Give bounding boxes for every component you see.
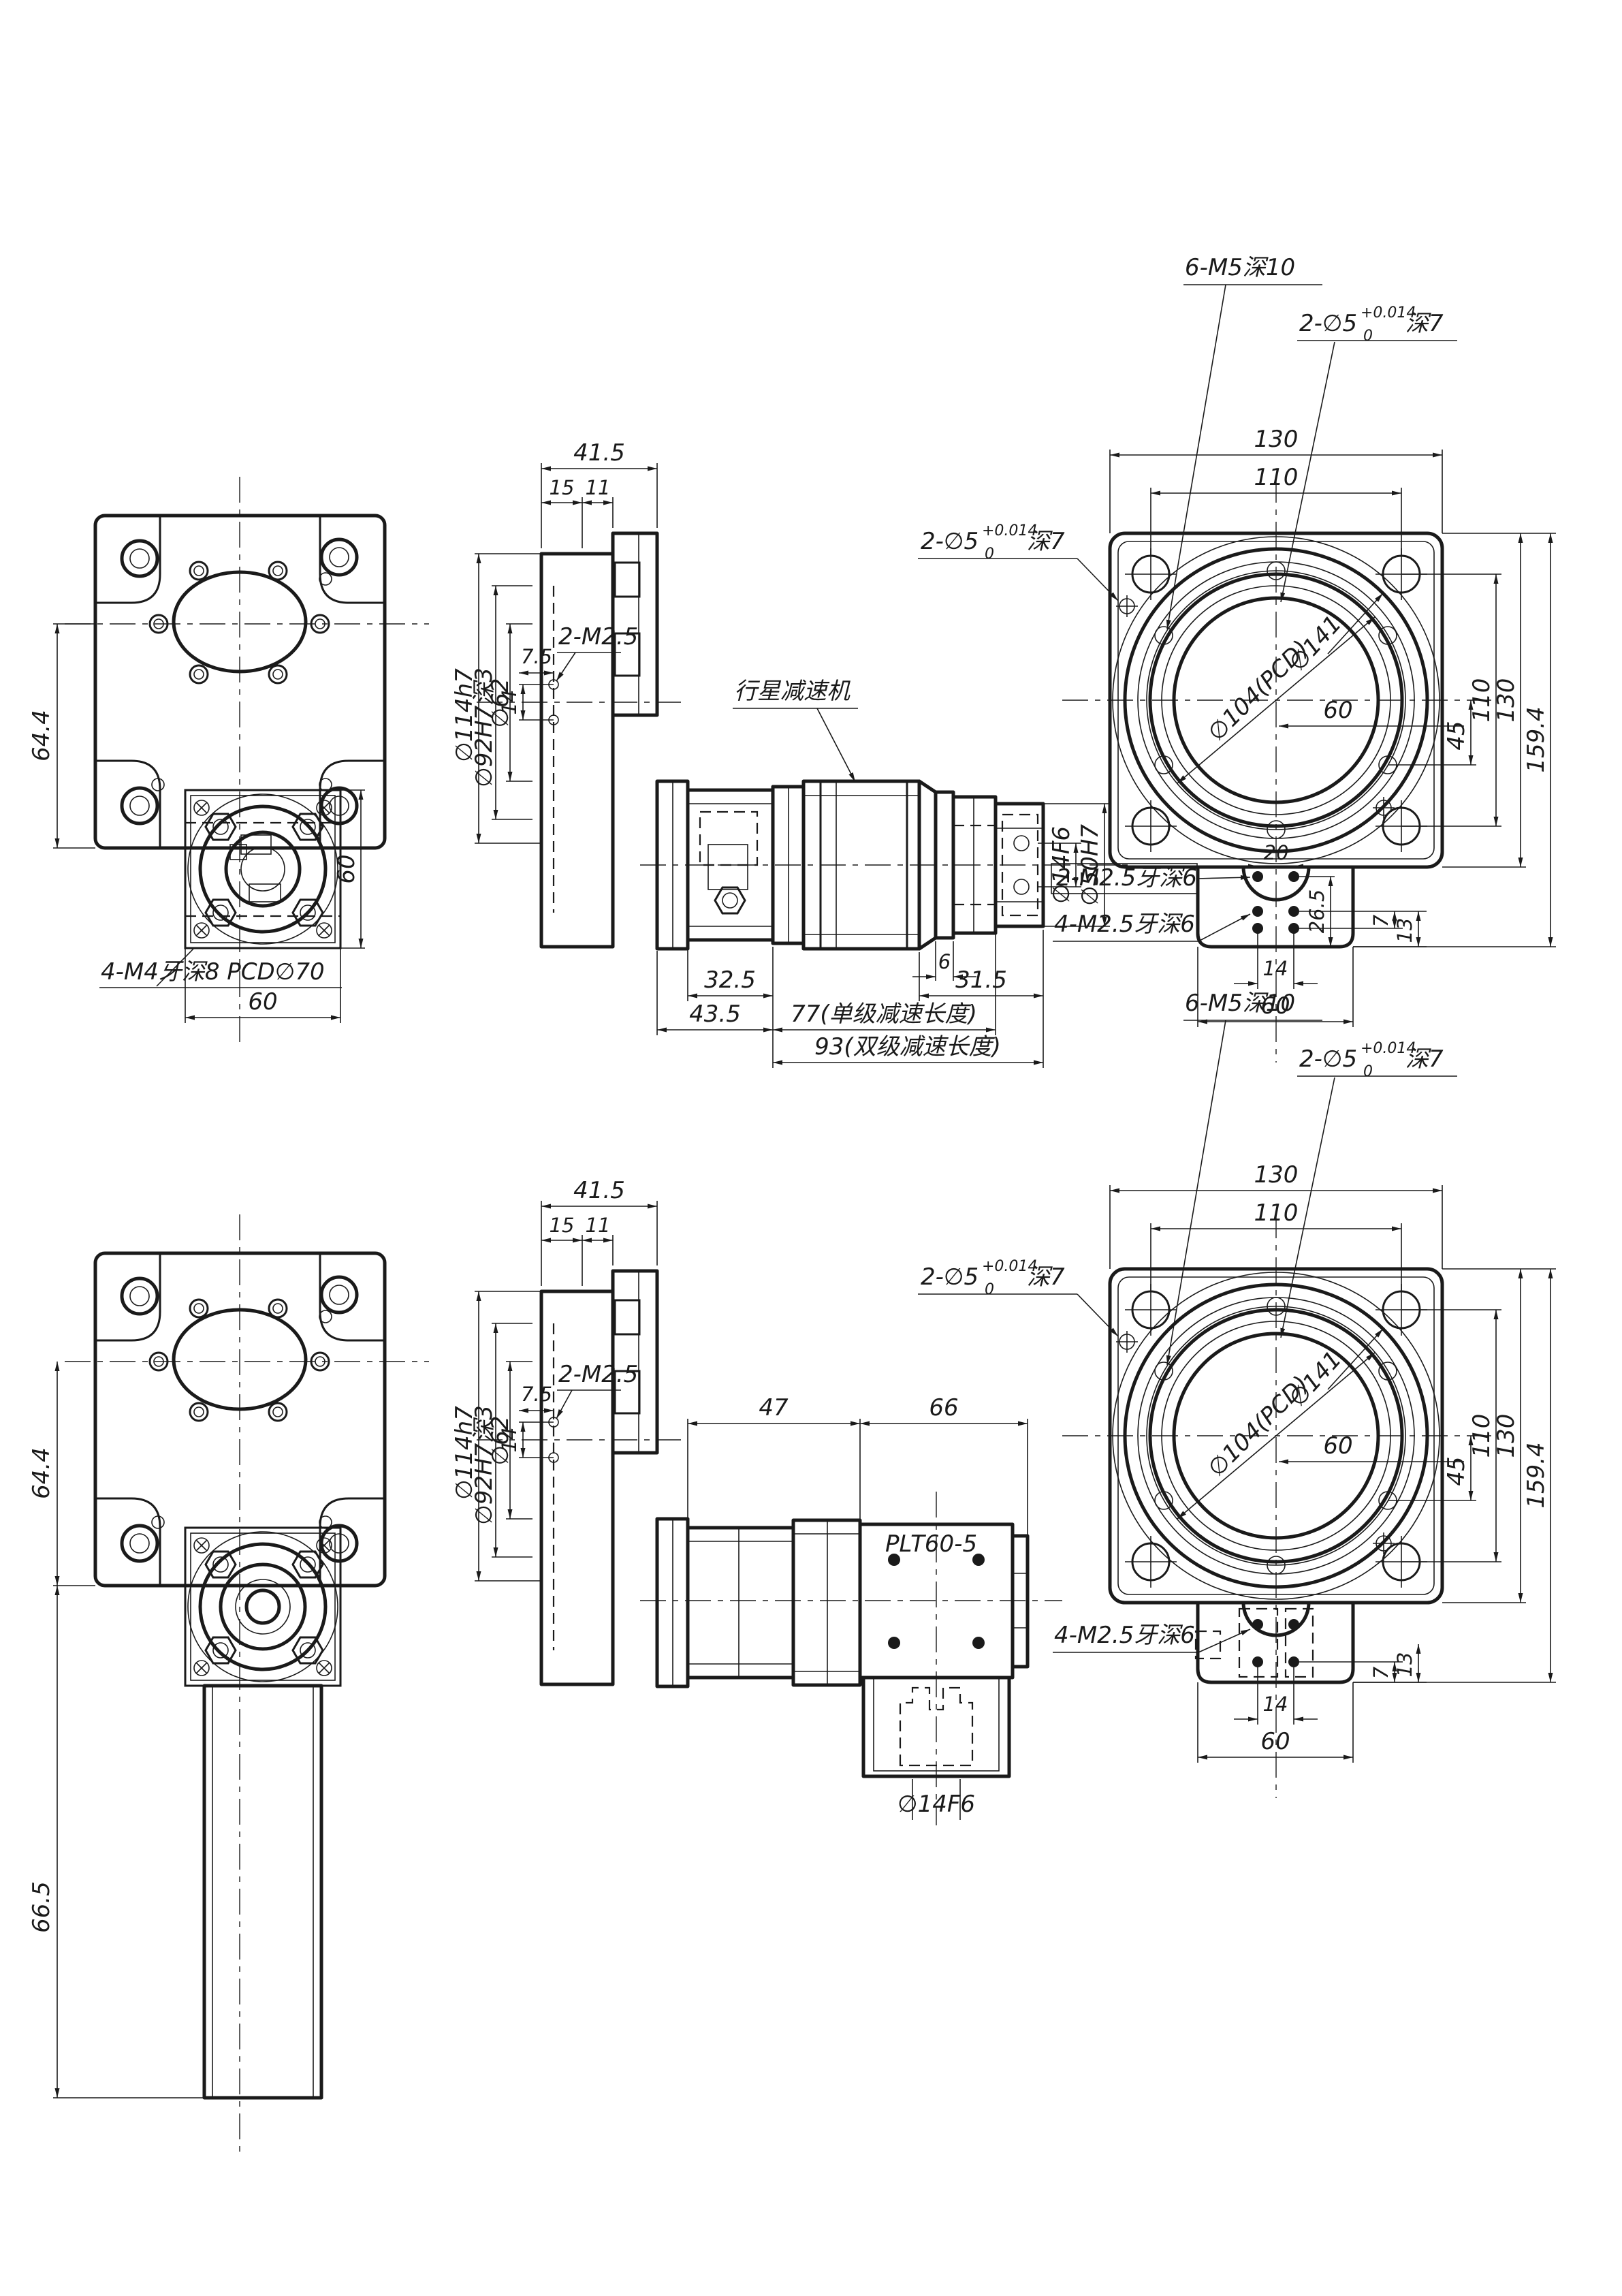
dim-130rb: 130 bbox=[1493, 1414, 1520, 1458]
dim-14bb: 14 bbox=[1263, 1693, 1288, 1716]
dim-dia104: ∅104(PCD) bbox=[1203, 635, 1314, 746]
dim-hole-offset: 7.5 bbox=[521, 645, 552, 668]
note-m4-thread: 4-M4牙深8 PCD∅70 bbox=[101, 958, 325, 986]
pin-prefix: 2-∅5 bbox=[921, 528, 979, 555]
dim-13: 13 bbox=[1393, 918, 1416, 943]
note-pin-left: 2-∅5 +0.014 0 深7 bbox=[918, 522, 1118, 601]
dim-dia62: ∅62 bbox=[487, 678, 514, 728]
dim-110rb: 110 bbox=[1468, 1414, 1495, 1458]
dim-45b: 45 bbox=[1443, 1456, 1470, 1485]
note-m25x4b: 4-M2.5牙深6 bbox=[1054, 1622, 1195, 1649]
dim-out-len: 31.5 bbox=[955, 966, 1007, 994]
dim-flange-height: 60 bbox=[333, 854, 360, 883]
pin-sub: 0 bbox=[985, 1281, 994, 1298]
dim-hole-pitch110b: 110 bbox=[1254, 1199, 1299, 1227]
pin-suffix: 深7 bbox=[1405, 1045, 1444, 1073]
dim-hole-offset2: 7.5 bbox=[521, 1383, 552, 1406]
pin-sub: 0 bbox=[1363, 328, 1373, 345]
note-m5: 6-M5深10 bbox=[1185, 254, 1295, 281]
dim-half60b: 60 bbox=[1323, 1432, 1352, 1460]
drawing-sheet: 4-M4牙深8 PCD∅70 60 60 64.4 2-M2.5 7.5 14 … bbox=[0, 0, 1622, 2296]
dim-7: 7 bbox=[1369, 914, 1393, 927]
dim-double-stage: 93(双级减速长度) bbox=[814, 1033, 1001, 1060]
dim-total-height: 159.4 bbox=[1523, 706, 1550, 772]
dim-60bb: 60 bbox=[1260, 1728, 1290, 1755]
dim-total-height-b: 159.4 bbox=[1523, 1442, 1550, 1508]
dim-45: 45 bbox=[1443, 721, 1470, 750]
pin-prefix: 2-∅5 bbox=[921, 1263, 979, 1291]
dim-single-stage: 77(单级减速长度) bbox=[791, 1001, 977, 1028]
note-m25x2: 2-M2.5牙深6 bbox=[1056, 864, 1197, 892]
dim-center-offset: 64.4 bbox=[28, 710, 55, 761]
note-model: PLT60-5 bbox=[885, 1530, 977, 1558]
note-m5b: 6-M5深10 bbox=[1185, 990, 1295, 1017]
pin-suffix: 深7 bbox=[1027, 528, 1065, 555]
note-pin-left-b: 2-∅5 +0.014 0 深7 bbox=[918, 1258, 1118, 1336]
dim-center-offset2: 64.4 bbox=[28, 1447, 55, 1499]
dim-step11b: 11 bbox=[586, 1214, 611, 1237]
note-m25-top: 2-M2.5 bbox=[558, 623, 638, 650]
dim-13b: 13 bbox=[1393, 1652, 1416, 1678]
pin-suffix: 深7 bbox=[1405, 310, 1444, 337]
dim-flange-width: 60 bbox=[248, 988, 277, 1016]
pin-prefix: 2-∅5 bbox=[1299, 310, 1357, 337]
dim-step15b: 15 bbox=[550, 1214, 575, 1237]
cad-canvas: 4-M4牙深8 PCD∅70 60 60 64.4 2-M2.5 7.5 14 … bbox=[0, 0, 1622, 2296]
note-planetary-reducer: 行星减速机 bbox=[734, 678, 850, 705]
note-m25x4: 4-M2.5牙深6 bbox=[1054, 911, 1195, 938]
pin-prefix: 2-∅5 bbox=[1299, 1045, 1357, 1073]
dim-motor-len: 32.5 bbox=[704, 966, 756, 994]
note-pin-top-b: 2-∅5 +0.014 0 深7 bbox=[1281, 1040, 1457, 1338]
pin-sub: 0 bbox=[985, 546, 994, 563]
dim-plate-depth2: 41.5 bbox=[573, 1177, 625, 1204]
dim-bore14b: ∅14F6 bbox=[897, 1791, 975, 1818]
view-rear-top: ∅141 ∅104(PCD) 60 110 130 6-M5深10 2-∅5 +… bbox=[918, 254, 1556, 1063]
dim-66: 66 bbox=[929, 1394, 958, 1421]
dim-ring6: 6 bbox=[938, 950, 951, 973]
note-m25-bottom: 2-M2.5 bbox=[558, 1361, 638, 1388]
dim-plate130: 130 bbox=[1254, 426, 1299, 453]
dim-66-5: 66.5 bbox=[28, 1881, 55, 1933]
dim-110r: 110 bbox=[1468, 678, 1495, 723]
dim-half60: 60 bbox=[1323, 697, 1352, 724]
view-front-top: 4-M4牙深8 PCD∅70 60 60 64.4 bbox=[28, 477, 429, 1042]
dim-step11: 11 bbox=[586, 476, 611, 499]
view-front-bottom: 64.4 66.5 bbox=[28, 1214, 429, 2152]
dim-dia62b: ∅62 bbox=[487, 1416, 514, 1466]
dim-dia104b: ∅104(PCD) bbox=[1203, 1370, 1314, 1482]
dim-step15: 15 bbox=[550, 476, 575, 499]
note-pin-top: 2-∅5 +0.014 0 深7 bbox=[1281, 304, 1457, 602]
pin-sub: 0 bbox=[1363, 1063, 1373, 1080]
dim-130r: 130 bbox=[1493, 678, 1520, 723]
dim-front-len: 43.5 bbox=[689, 1001, 741, 1028]
dim-47: 47 bbox=[759, 1394, 789, 1421]
dim-7b: 7 bbox=[1369, 1666, 1393, 1679]
dim-plate130b: 130 bbox=[1254, 1161, 1299, 1189]
dim-14b: 14 bbox=[1263, 957, 1288, 980]
pin-suffix: 深7 bbox=[1027, 1263, 1065, 1291]
dim-plate-depth: 41.5 bbox=[573, 439, 625, 467]
dim-20: 20 bbox=[1264, 841, 1289, 864]
dim-hole-pitch110: 110 bbox=[1254, 464, 1299, 491]
